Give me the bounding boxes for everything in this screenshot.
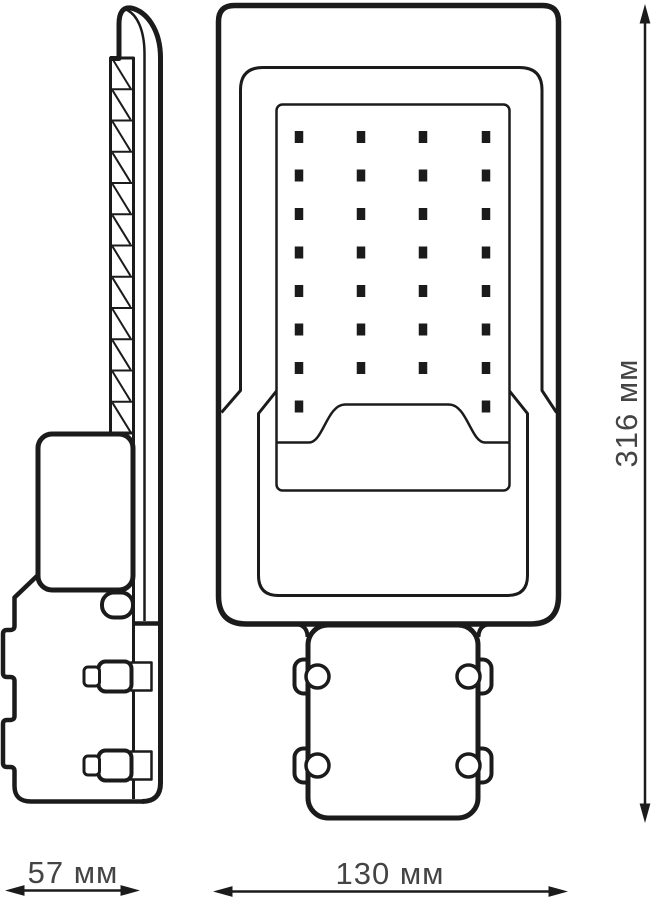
led-dot [482,362,491,374]
front-width-dimension: 130 мм [213,856,568,897]
led-dot [295,247,304,259]
led-dot [295,362,304,374]
gland-body [99,751,132,781]
led-dot [482,324,491,336]
gland-body [99,662,132,692]
cable-gland-bottom [84,751,152,781]
led-dot [482,131,491,143]
led-dot [419,247,428,259]
bolt-hole [306,665,329,688]
gland-nut [131,663,152,691]
led-dot [419,131,428,143]
side-width-dimension-label: 57 мм [28,855,119,890]
gland-tip [84,756,100,775]
arrow-left-icon [5,885,25,896]
fin-teeth [111,59,134,432]
led-dot [419,170,428,182]
side-view [3,8,161,802]
mounting-arm [308,625,478,818]
height-dimension: 316 мм [609,4,650,823]
led-dot [419,285,428,297]
arrow-down-icon [640,804,651,824]
led-dot [482,170,491,182]
led-dot [295,285,304,297]
led-dot [357,208,366,220]
heatsink-fins [111,58,134,433]
front-view [219,6,559,819]
led-dot [482,247,491,259]
arrow-right-icon [121,885,141,896]
street-light-diagram: 316 мм 57 мм 130 мм [0,0,654,900]
technical-drawing: 316 мм 57 мм 130 мм [0,0,654,900]
gland-nut [131,752,152,780]
gland-tip [84,667,100,686]
arrow-up-icon [640,4,651,24]
led-dot [357,285,366,297]
led-dot [482,285,491,297]
arrow-right-icon [549,886,569,897]
front-width-dimension-label: 130 мм [336,856,445,891]
led-dot [295,401,304,413]
led-dot [357,362,366,374]
side-width-dimension: 57 мм [5,855,140,896]
led-dot [419,208,428,220]
latch-tab [102,593,133,618]
bolt-hole [457,665,480,688]
led-dot [295,131,304,143]
led-dot [419,362,428,374]
led-dot [357,170,366,182]
height-dimension-label: 316 мм [609,359,644,468]
bolt-hole [306,754,329,777]
led-dot [357,131,366,143]
driver-box [38,434,133,590]
cable-gland-top [84,662,152,692]
led-dot [357,247,366,259]
led-dot [295,324,304,336]
bolt-hole [457,754,480,777]
led-dot [482,208,491,220]
led-dot [482,401,491,413]
led-dot [295,208,304,220]
led-dot [419,324,428,336]
led-dot [295,170,304,182]
led-dot [357,324,366,336]
arrow-left-icon [213,886,233,897]
